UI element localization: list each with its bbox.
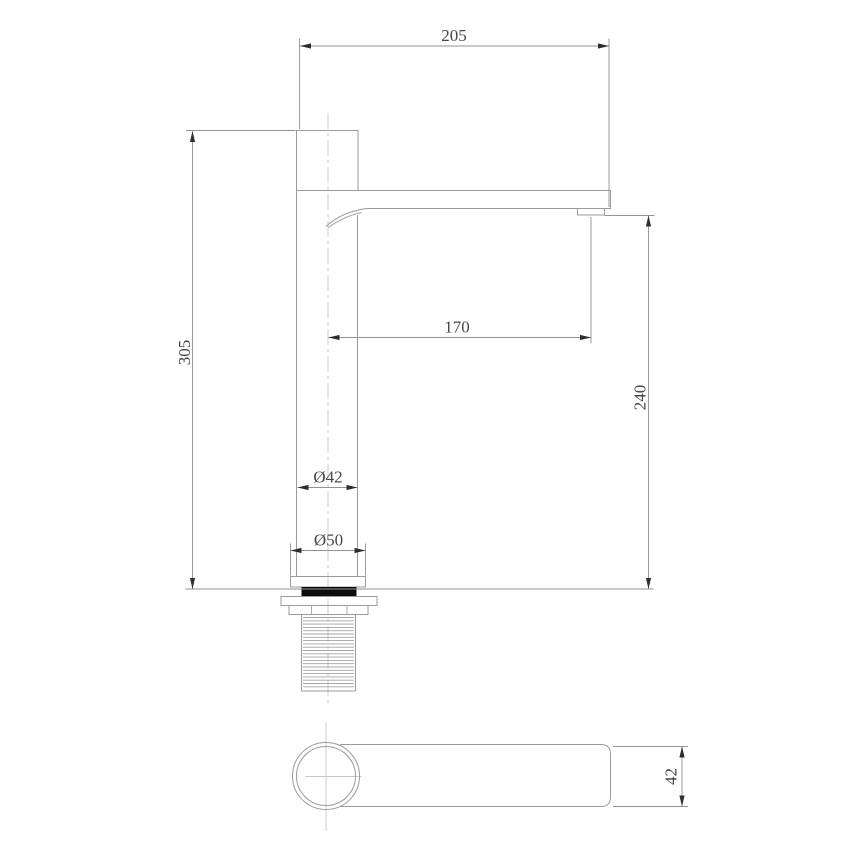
dim-spout-width: 42 [613, 747, 688, 807]
arrowhead-right [598, 43, 609, 48]
arrowhead-right [580, 335, 591, 340]
dim-base-diameter-label: Ø50 [314, 531, 343, 550]
arrowhead-bottom [679, 796, 684, 807]
threaded-shank [302, 615, 356, 692]
arrowhead-bottom [646, 578, 651, 589]
extension-lines [300, 39, 610, 208]
spout-outline [297, 191, 611, 209]
handle-block [297, 131, 359, 191]
side-elevation-view [281, 113, 611, 706]
faucet-technical-drawing: 205 305 170 [0, 0, 866, 865]
technical-drawing-canvas: 205 305 170 [0, 0, 866, 865]
arrowhead-top [190, 131, 195, 142]
arrowhead-left [329, 335, 340, 340]
rubber-gasket [302, 587, 357, 597]
dim-spout-reach-label: 170 [444, 318, 470, 337]
aerator [578, 209, 605, 216]
arrowhead-right [347, 485, 358, 490]
dim-spout-height-label: 240 [631, 385, 650, 411]
arrowhead-right [355, 548, 366, 553]
arrowhead-top [679, 747, 684, 758]
lock-nut-facet-lines [312, 606, 348, 615]
lock-nut [289, 606, 368, 615]
dim-spout-height: 240 [605, 216, 655, 590]
dim-spout-reach: 170 [329, 217, 592, 344]
plan-view: 42 [293, 723, 689, 832]
spout-plan-outline [340, 745, 611, 807]
thread-lines [303, 618, 354, 687]
dim-spout-width-label: 42 [662, 768, 681, 785]
arrowhead-bottom [190, 578, 195, 589]
arrowhead-left [298, 485, 309, 490]
arrowhead-left [300, 43, 311, 48]
dim-body-diameter-label: Ø42 [313, 468, 342, 487]
dim-overall-height-label: 305 [175, 340, 194, 366]
dim-overall-height: 305 [175, 131, 654, 590]
dim-overall-width-label: 205 [441, 26, 467, 45]
dimensions-side-view: 205 305 170 [175, 26, 655, 589]
dim-body-diameter: Ø42 [298, 468, 358, 491]
mounting-washer [281, 597, 377, 606]
dim-overall-width: 205 [300, 26, 610, 207]
arrowhead-top [646, 216, 651, 227]
